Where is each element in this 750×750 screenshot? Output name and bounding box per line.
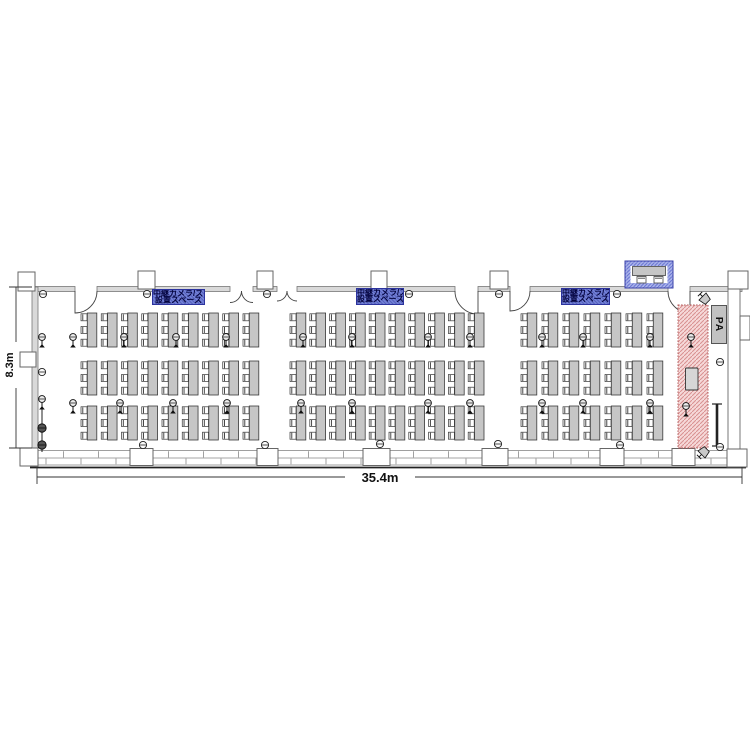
chair	[521, 420, 527, 427]
banquet-table	[87, 406, 97, 440]
pillar	[740, 316, 750, 340]
pillar	[482, 449, 508, 466]
chair	[542, 314, 548, 321]
chair	[626, 407, 632, 414]
chair	[142, 314, 148, 321]
banquet-table	[249, 406, 258, 440]
chair	[349, 387, 355, 394]
chair	[429, 387, 435, 394]
chair	[182, 375, 188, 382]
chair	[243, 362, 249, 369]
banquet-table	[229, 406, 239, 440]
chair	[122, 362, 128, 369]
chair	[389, 387, 395, 394]
chair	[409, 420, 415, 427]
banquet-table	[632, 313, 642, 347]
banquet-table	[376, 313, 386, 347]
chair	[330, 407, 336, 414]
chair	[605, 432, 611, 439]
banquet-table	[415, 361, 425, 395]
chair	[81, 339, 87, 346]
chair	[203, 420, 209, 427]
banquet-table	[209, 361, 219, 395]
chair	[122, 407, 128, 414]
chair	[647, 375, 653, 382]
pillar	[138, 271, 155, 289]
banquet-table	[527, 361, 537, 395]
chair	[584, 375, 590, 382]
chair	[182, 327, 188, 334]
chair	[243, 407, 249, 414]
chair	[563, 375, 569, 382]
banquet-table	[316, 406, 326, 440]
banquet-table	[415, 313, 425, 347]
right-wall	[728, 289, 740, 452]
chair	[223, 375, 229, 382]
chair	[521, 314, 527, 321]
banquet-table	[128, 313, 138, 347]
chair	[162, 407, 168, 414]
chair	[563, 327, 569, 334]
chair	[409, 327, 415, 334]
chair	[101, 362, 107, 369]
banquet-table	[336, 361, 346, 395]
chair	[223, 362, 229, 369]
chair	[330, 327, 336, 334]
banquet-table	[455, 313, 465, 347]
pillar	[363, 449, 390, 466]
chair	[203, 407, 209, 414]
banquet-table	[336, 406, 346, 440]
chair	[182, 339, 188, 346]
banquet-table	[653, 361, 663, 395]
chair	[330, 387, 336, 394]
chair	[162, 339, 168, 346]
banquet-table	[569, 406, 579, 440]
chair	[605, 339, 611, 346]
chair	[203, 339, 209, 346]
banquet-table	[475, 406, 485, 440]
chair	[162, 387, 168, 394]
chair	[142, 387, 148, 394]
banquet-table	[87, 361, 97, 395]
chair	[647, 327, 653, 334]
banquet-table	[356, 313, 366, 347]
chair	[330, 432, 336, 439]
banquet-table	[548, 361, 558, 395]
floor-plan-page: 中継カメラ/スクリーン 設置スペース 中継カメラ/スクリーン 設置スペース 中継…	[0, 0, 750, 750]
chair	[521, 407, 527, 414]
chair	[448, 327, 454, 334]
chair	[584, 420, 590, 427]
banquet-table	[590, 361, 600, 395]
banquet-table	[455, 361, 465, 395]
chair	[81, 407, 87, 414]
chair	[330, 339, 336, 346]
chair	[243, 432, 249, 439]
banquet-table	[475, 361, 485, 395]
chair	[243, 420, 249, 427]
chair	[626, 420, 632, 427]
pillar	[490, 271, 508, 289]
banquet-table	[590, 406, 600, 440]
chair	[448, 387, 454, 394]
banquet-table	[395, 361, 405, 395]
chair	[521, 375, 527, 382]
chair	[626, 327, 632, 334]
chair	[290, 407, 296, 414]
banquet-table	[356, 406, 366, 440]
floor-mic-base	[70, 410, 76, 414]
chair	[182, 387, 188, 394]
chair	[429, 327, 435, 334]
chair	[81, 432, 87, 439]
chair	[81, 420, 87, 427]
banquet-table	[229, 313, 239, 347]
chair	[409, 375, 415, 382]
banquet-table	[653, 313, 663, 347]
chair	[243, 339, 249, 346]
chair	[122, 375, 128, 382]
chair	[290, 387, 296, 394]
door-swing	[510, 291, 530, 311]
chair	[605, 375, 611, 382]
chair	[203, 362, 209, 369]
chair	[409, 339, 415, 346]
chair	[626, 375, 632, 382]
chair	[389, 314, 395, 321]
chair	[203, 314, 209, 321]
chair	[584, 327, 590, 334]
podium	[686, 368, 699, 390]
chair	[448, 420, 454, 427]
chair	[203, 327, 209, 334]
chair	[162, 375, 168, 382]
chair	[290, 432, 296, 439]
chair	[349, 327, 355, 334]
chair	[563, 407, 569, 414]
chair	[203, 432, 209, 439]
banquet-table	[336, 313, 346, 347]
chair	[349, 314, 355, 321]
chair	[369, 432, 375, 439]
chair	[448, 375, 454, 382]
chair	[369, 420, 375, 427]
chair	[448, 407, 454, 414]
chair	[389, 362, 395, 369]
chair	[290, 314, 296, 321]
double-door-swing	[287, 291, 297, 301]
chair	[542, 420, 548, 427]
banquet-table	[590, 313, 600, 347]
pillar	[130, 449, 153, 466]
chair	[142, 420, 148, 427]
chair	[626, 362, 632, 369]
chair	[409, 432, 415, 439]
chair	[605, 387, 611, 394]
banquet-table	[229, 361, 239, 395]
banquet-table	[168, 361, 178, 395]
chair	[563, 314, 569, 321]
banquet-table	[296, 361, 306, 395]
chair	[162, 327, 168, 334]
banquet-table	[209, 406, 219, 440]
chair	[290, 362, 296, 369]
chair	[369, 362, 375, 369]
chair	[349, 432, 355, 439]
chair	[369, 407, 375, 414]
chair	[203, 387, 209, 394]
chair	[647, 432, 653, 439]
chair	[647, 420, 653, 427]
chair	[290, 339, 296, 346]
chair	[647, 362, 653, 369]
chair	[290, 327, 296, 334]
chair	[605, 362, 611, 369]
banquet-table	[316, 313, 326, 347]
banquet-table	[108, 406, 118, 440]
pillar	[20, 352, 36, 367]
chair	[584, 362, 590, 369]
pillar	[18, 272, 35, 291]
chair	[468, 432, 474, 439]
chair	[142, 432, 148, 439]
zone-label-1: 中継カメラ/スクリーン 設置スペース	[152, 289, 205, 305]
banquet-table	[548, 313, 558, 347]
chair	[310, 407, 316, 414]
banquet-table	[189, 406, 199, 440]
banquet-table	[611, 313, 621, 347]
width-dimension-label: 35.4m	[345, 470, 415, 485]
chair	[448, 339, 454, 346]
chair	[243, 314, 249, 321]
banquet-table	[395, 313, 405, 347]
chair	[142, 375, 148, 382]
chair	[81, 375, 87, 382]
floor-mic-base	[70, 344, 76, 348]
chair	[409, 362, 415, 369]
chair	[223, 420, 229, 427]
pillar	[371, 271, 387, 289]
banquet-table	[569, 361, 579, 395]
chair	[142, 339, 148, 346]
chair	[81, 362, 87, 369]
banquet-table	[148, 406, 158, 440]
chair	[182, 407, 188, 414]
chair	[310, 420, 316, 427]
chair	[626, 387, 632, 394]
chair	[122, 387, 128, 394]
chair	[182, 420, 188, 427]
chair	[647, 314, 653, 321]
chair	[349, 362, 355, 369]
banquet-table	[249, 313, 258, 347]
chair	[330, 420, 336, 427]
chair	[468, 327, 474, 334]
chair	[182, 362, 188, 369]
chair	[223, 432, 229, 439]
chair	[349, 375, 355, 382]
chair	[243, 387, 249, 394]
door-swing	[455, 291, 478, 314]
chair	[162, 420, 168, 427]
pillar	[600, 449, 624, 466]
banquet-table	[435, 361, 445, 395]
chair	[369, 375, 375, 382]
chair	[290, 375, 296, 382]
pillar	[672, 449, 695, 466]
banquet-table	[435, 313, 445, 347]
chair	[542, 362, 548, 369]
chair	[223, 387, 229, 394]
banquet-table	[249, 361, 258, 395]
chair	[521, 362, 527, 369]
chair	[310, 375, 316, 382]
floor-plan-svg	[0, 0, 750, 750]
chair	[310, 362, 316, 369]
chair	[162, 432, 168, 439]
pillar	[728, 271, 748, 289]
chair	[521, 432, 527, 439]
chair	[468, 387, 474, 394]
zone-label-2: 中継カメラ/スクリーン 設置スペース	[356, 288, 404, 305]
banquet-table	[108, 361, 118, 395]
chair	[369, 314, 375, 321]
left-wall	[32, 287, 38, 450]
chair	[389, 420, 395, 427]
banquet-table	[632, 406, 642, 440]
chair	[122, 327, 128, 334]
chair	[81, 387, 87, 394]
chair	[409, 387, 415, 394]
chair	[162, 362, 168, 369]
chair	[389, 339, 395, 346]
banquet-table	[296, 313, 306, 347]
pillar	[20, 448, 38, 466]
chair	[122, 420, 128, 427]
chair	[389, 432, 395, 439]
double-door-swing	[230, 291, 242, 303]
pillar	[727, 449, 747, 467]
banquet-table	[209, 313, 219, 347]
banquet-table	[611, 361, 621, 395]
floor-mic-base	[39, 406, 45, 410]
chair	[81, 314, 87, 321]
zone-label-3: 中継カメラ/スクリーン 設置スペース	[561, 288, 610, 305]
chair	[542, 327, 548, 334]
chair	[243, 327, 249, 334]
chair	[389, 407, 395, 414]
chair	[409, 314, 415, 321]
chair	[429, 314, 435, 321]
chair	[369, 339, 375, 346]
banquet-table	[376, 361, 386, 395]
chair	[605, 407, 611, 414]
chair	[122, 314, 128, 321]
chair	[448, 362, 454, 369]
banquet-table	[128, 406, 138, 440]
chair	[223, 314, 229, 321]
chair	[101, 387, 107, 394]
av-booth-chair	[637, 277, 646, 284]
chair	[389, 327, 395, 334]
chair	[563, 432, 569, 439]
chair	[448, 314, 454, 321]
chair	[563, 420, 569, 427]
chair	[310, 432, 316, 439]
chair	[605, 327, 611, 334]
zone-label-3-text: 中継カメラ/スクリーン 設置スペース	[562, 289, 609, 303]
chair	[101, 327, 107, 334]
chair	[409, 407, 415, 414]
chair	[310, 339, 316, 346]
banquet-table	[128, 361, 138, 395]
chair	[389, 375, 395, 382]
chair	[626, 314, 632, 321]
chair	[521, 327, 527, 334]
chair	[542, 375, 548, 382]
chair	[349, 420, 355, 427]
chair	[101, 314, 107, 321]
chair	[626, 339, 632, 346]
pillar	[257, 271, 273, 289]
banquet-table	[189, 361, 199, 395]
pa-label: PA	[714, 317, 725, 332]
chair	[468, 375, 474, 382]
chair	[330, 375, 336, 382]
chair	[101, 420, 107, 427]
banquet-table	[148, 361, 158, 395]
zone-label-2-text: 中継カメラ/スクリーン 設置スペース	[357, 289, 403, 303]
double-door-swing	[242, 291, 254, 303]
chair	[468, 314, 474, 321]
banquet-table	[611, 406, 621, 440]
banquet-table	[475, 313, 485, 347]
chair	[468, 362, 474, 369]
chair	[369, 327, 375, 334]
chair	[101, 407, 107, 414]
chair	[563, 362, 569, 369]
height-dimension-label: 8.3m	[4, 342, 18, 388]
banquet-table	[548, 406, 558, 440]
chair	[310, 327, 316, 334]
chair	[182, 314, 188, 321]
banquet-table	[189, 313, 199, 347]
chair	[626, 432, 632, 439]
chair	[310, 387, 316, 394]
chair	[142, 407, 148, 414]
banquet-table	[356, 361, 366, 395]
chair	[330, 314, 336, 321]
chair	[584, 314, 590, 321]
chair	[101, 375, 107, 382]
chair	[563, 339, 569, 346]
banquet-table	[455, 406, 465, 440]
banquet-table	[87, 313, 97, 347]
chair	[122, 432, 128, 439]
banquet-table	[415, 406, 425, 440]
door-swing	[75, 291, 97, 313]
chair	[310, 314, 316, 321]
av-booth-table	[633, 267, 666, 276]
banquet-table	[395, 406, 405, 440]
chair	[330, 362, 336, 369]
chair	[448, 432, 454, 439]
chair	[429, 375, 435, 382]
chair	[182, 432, 188, 439]
chair	[203, 375, 209, 382]
chair	[290, 420, 296, 427]
